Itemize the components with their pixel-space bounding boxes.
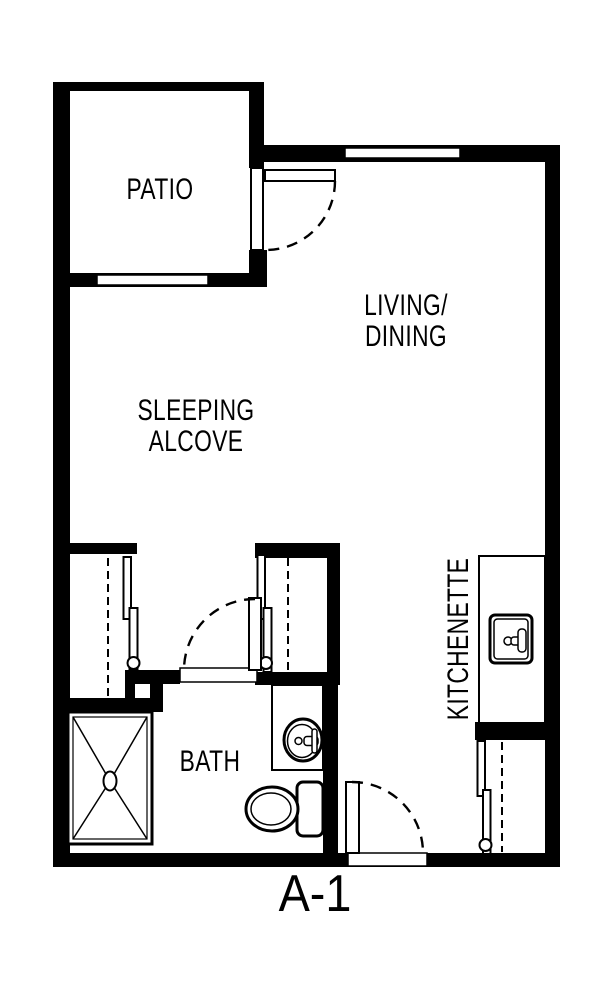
wall-exterior-right <box>545 145 560 867</box>
threshold-entry-door <box>348 853 427 866</box>
kitchen-sink-icon <box>490 615 532 663</box>
closet-door-kitchenette-panel-1 <box>478 741 486 796</box>
entry-door-swing-arc <box>352 782 423 853</box>
bathroom-sink-icon <box>284 719 322 761</box>
sleeping-alcove-label: SLEEPING ALCOVE <box>120 395 272 457</box>
wall-alcove-closet-left <box>53 543 137 554</box>
kitchenette-label: KITCHENETTE <box>444 525 474 753</box>
threshold-bath-door <box>180 668 257 682</box>
sleeping-alcove-label-line2: ALCOVE <box>120 426 272 457</box>
living-dining-label: LIVING/ DINING <box>330 290 482 352</box>
plan-name: A-1 <box>225 867 405 921</box>
living-dining-label-line1: LIVING/ <box>330 290 482 321</box>
wall-chase-right <box>150 684 163 712</box>
toilet-icon <box>246 782 323 836</box>
floor-plan: PATIO LIVING/ DINING SLEEPING ALCOVE KIT… <box>0 0 608 998</box>
shower-icon <box>68 712 152 844</box>
window-living <box>345 148 460 158</box>
wall-bath-right <box>323 685 338 853</box>
entry-door-leaf <box>346 782 359 853</box>
floor-plan-drawing <box>0 0 608 998</box>
sleeping-alcove-label-line1: SLEEPING <box>120 395 272 426</box>
patio-door-leaf <box>251 168 263 250</box>
closet-door-left-pull <box>128 657 140 669</box>
wall-left-closet-bottom <box>67 698 150 712</box>
wall-right-closet-side <box>327 543 340 685</box>
wall-bath-top-left <box>125 670 180 684</box>
wall-kitchenette-mid <box>475 722 545 740</box>
closet-door-kitchenette-pull <box>480 839 492 851</box>
wall-right-closet-bottom <box>255 672 340 685</box>
bath-door-leaf <box>249 598 261 670</box>
wall-patio-top <box>53 82 264 91</box>
bath-door-swing-arc <box>184 599 255 670</box>
living-dining-label-line2: DINING <box>330 321 482 352</box>
patio-door-header <box>265 170 335 181</box>
patio-label: PATIO <box>84 175 236 205</box>
patio-door-swing-arc <box>266 181 335 250</box>
window-patio <box>97 275 208 285</box>
bath-label: BATH <box>134 747 286 777</box>
wall-chase-left <box>125 684 135 698</box>
